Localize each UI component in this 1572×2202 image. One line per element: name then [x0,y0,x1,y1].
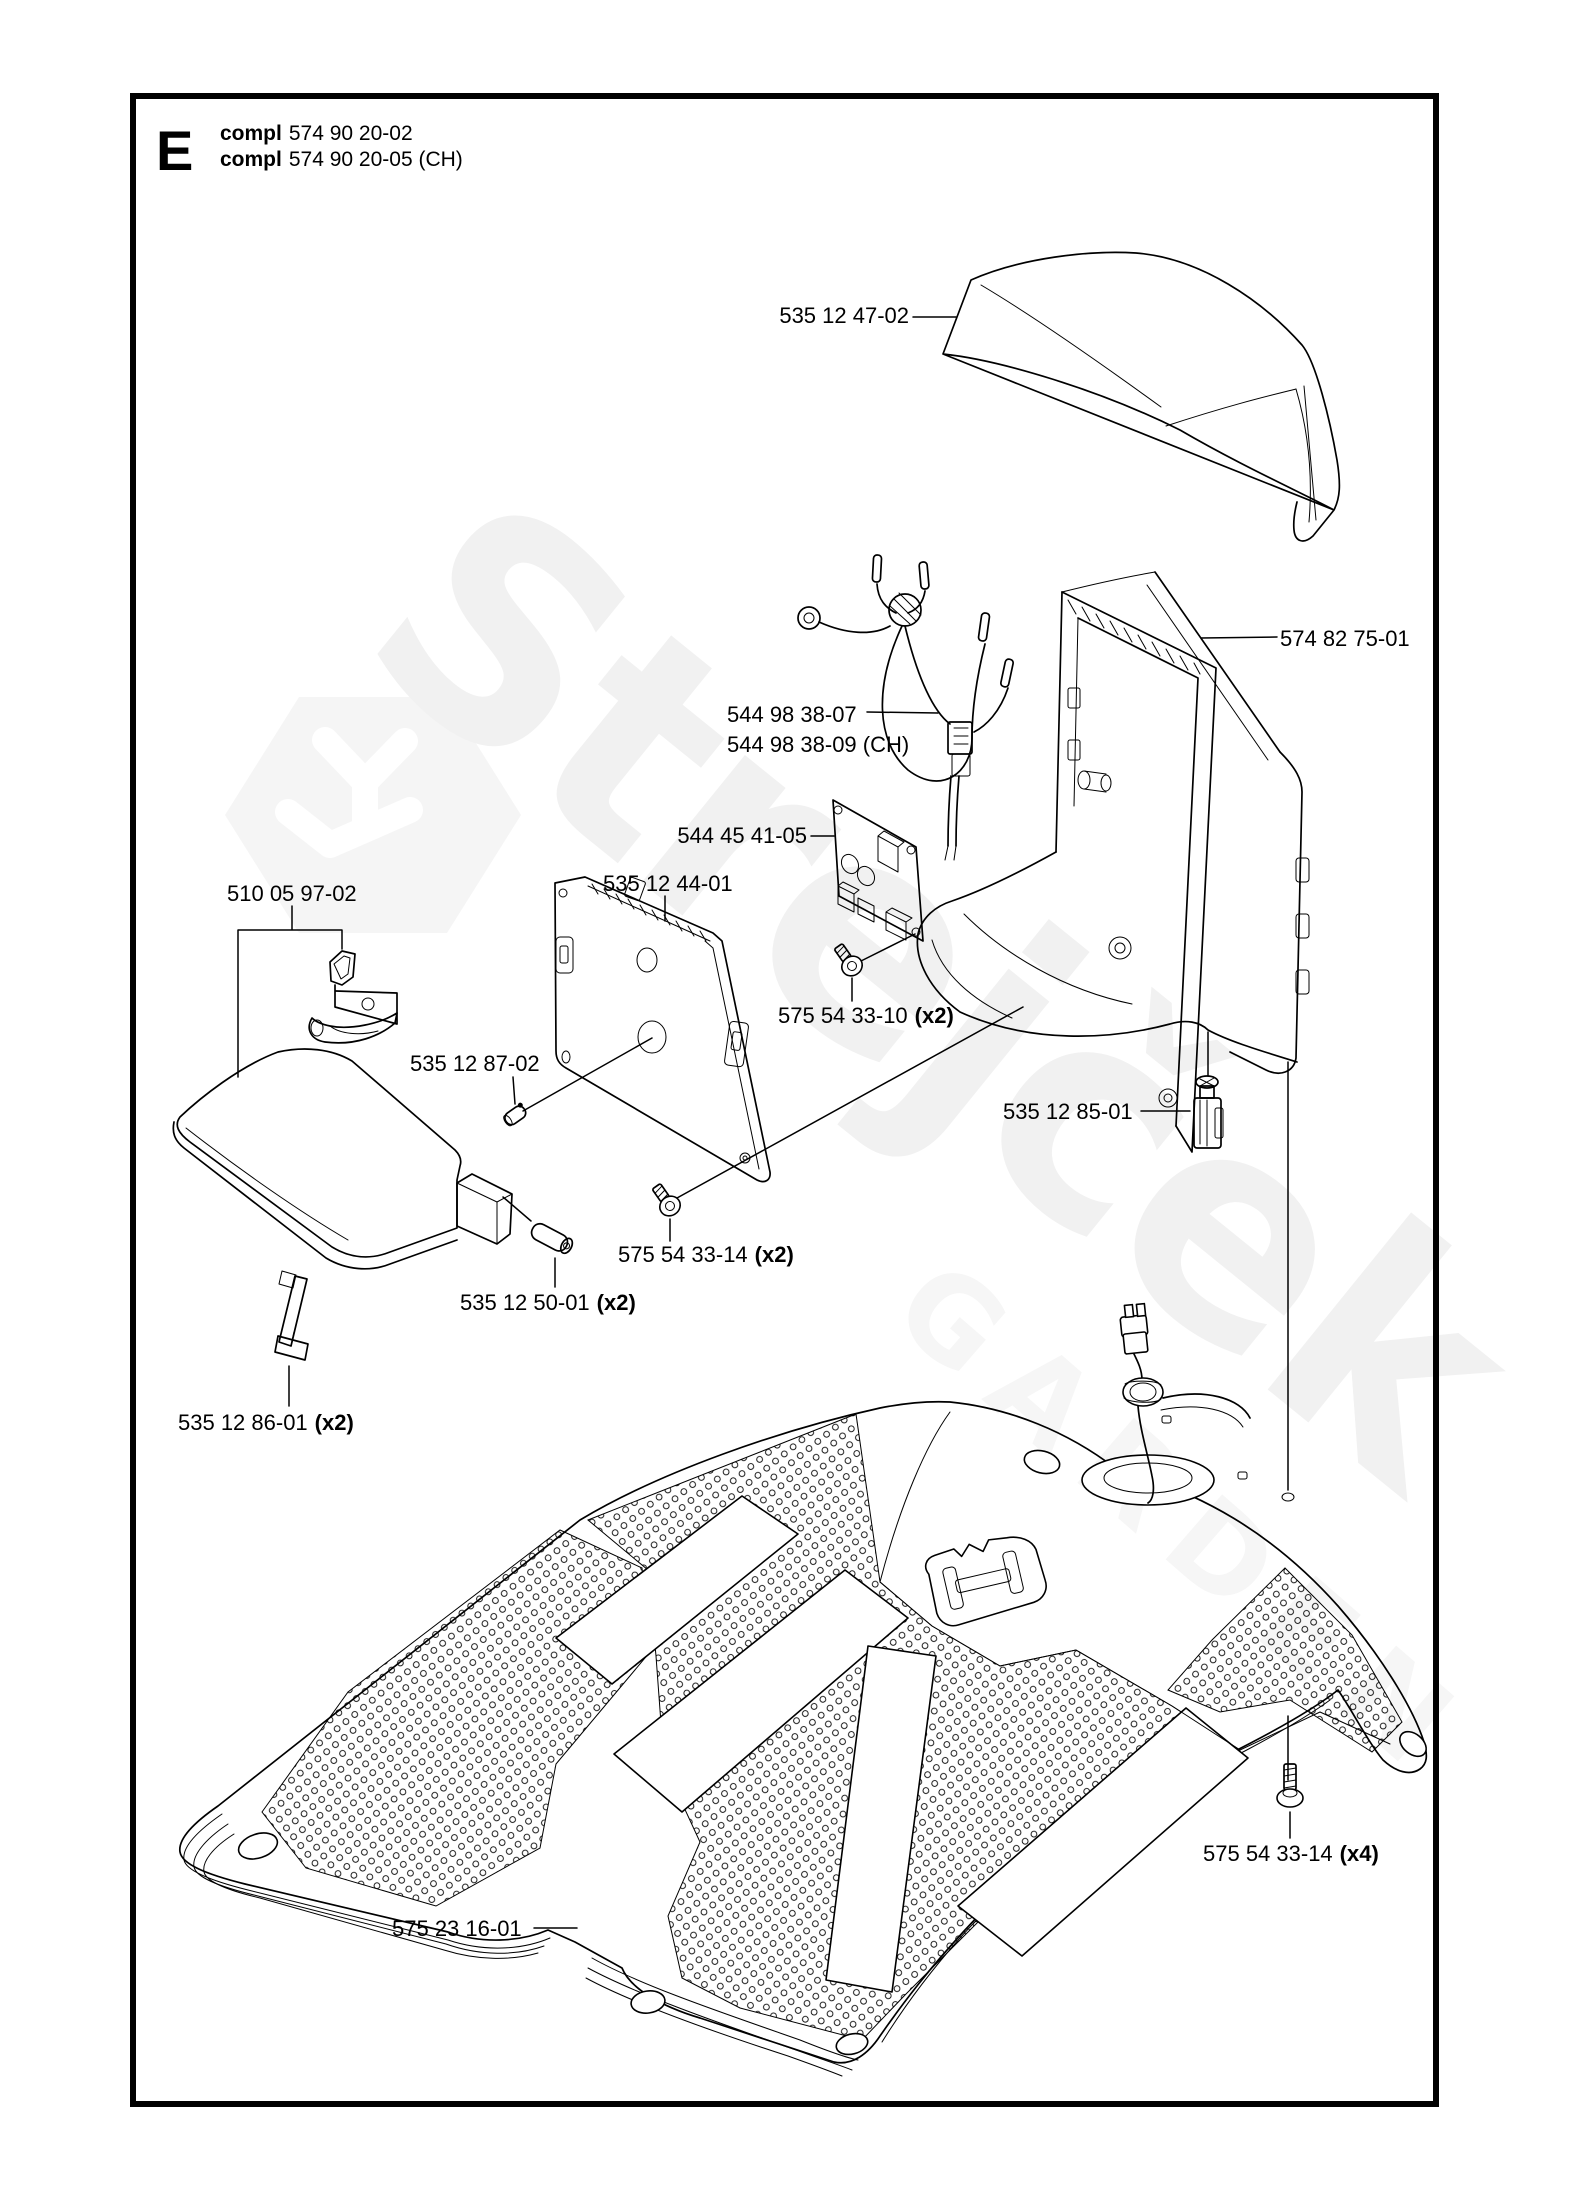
frame-cylinder [1078,771,1111,792]
header-line-1-prefix: compl [220,122,282,145]
part-label-535-12-85-01: 535 12 85-01 [1003,1099,1133,1124]
lid-handle-drawing [173,951,512,1269]
part-label-535-12-87-02: 535 12 87-02 [410,1051,540,1076]
screw-3314x4-drawing [1277,1764,1303,1807]
part-label-575-23-16-01: 575 23 16-01 [392,1916,522,1941]
part-qty: (x2) [915,1003,954,1028]
part-label-574-82-75-01: 574 82 75-01 [1280,626,1410,651]
part-number: 575 54 33-14 [618,1242,748,1267]
parts-catalog-page: Strejček GARDEN E compl574 90 20-02 comp… [0,0,1572,2202]
part-qty: (x2) [597,1290,636,1315]
screw-3314x2-drawing [648,1180,684,1219]
header: E compl574 90 20-02 compl574 90 20-05 (C… [156,119,463,182]
cable-boss [1082,1455,1214,1505]
header-line-1-number: 574 90 20-02 [289,122,413,145]
header-line-2: compl574 90 20-05 (CH) [220,148,463,171]
pin-drawing [529,1221,575,1256]
part-number: 535 12 50-01 [460,1290,590,1315]
parts-diagram-canvas: Strejček GARDEN E compl574 90 20-02 comp… [0,0,1572,2202]
part-label-544-98-38-09-ch: 544 98 38-09 (CH) [727,732,909,757]
part-qty: (x4) [1340,1841,1379,1866]
strap-drawing [275,1271,308,1360]
part-label-535-12-50-01: 535 12 50-01(x2) [460,1290,636,1315]
part-label-510-05-97-02: 510 05 97-02 [227,881,357,906]
part-label-535-12-47-02: 535 12 47-02 [779,303,909,328]
part-label-544-45-41-05: 544 45 41-05 [677,823,807,848]
header-line-2-prefix: compl [220,148,282,171]
section-letter: E [156,119,193,182]
header-line-2-number: 574 90 20-05 (CH) [289,148,463,171]
part-qty: (x2) [315,1410,354,1435]
husqvarna-logo [923,1530,1051,1630]
part-number: 535 12 86-01 [178,1410,308,1435]
part-label-544-98-38-07: 544 98 38-07 [727,702,857,727]
top-cover-drawing [943,252,1339,541]
part-label-535-12-86-01: 535 12 86-01(x2) [178,1410,354,1435]
part-label-575-54-33-14-x4: 575 54 33-14(x4) [1203,1841,1379,1866]
part-label-535-12-44-01: 535 12 44-01 [603,871,733,896]
screw-8702-drawing [501,1102,529,1128]
part-label-575-54-33-10: 575 54 33-10(x2) [778,1003,954,1028]
chassis-corner-hole [235,1828,280,1863]
part-label-575-54-33-14-x2: 575 54 33-14(x2) [618,1242,794,1267]
part-number: 575 54 33-14 [1203,1841,1333,1866]
part-number: 575 54 33-10 [778,1003,908,1028]
header-line-1: compl574 90 20-02 [220,122,413,145]
part-qty: (x2) [755,1242,794,1267]
